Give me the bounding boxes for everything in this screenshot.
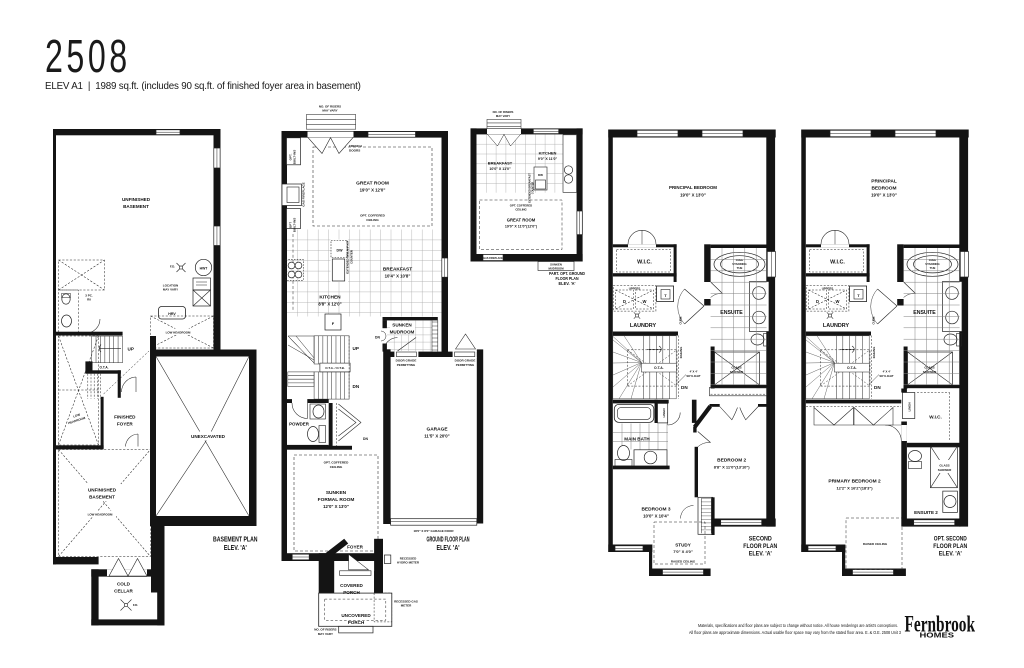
svg-text:MUDROOM: MUDROOM [390,330,415,335]
svg-text:MAY VARY: MAY VARY [322,109,337,113]
svg-text:SKYLIGHT: SKYLIGHT [686,374,700,378]
svg-text:HYDRO METER: HYDRO METER [397,561,420,565]
svg-text:UPPERS: UPPERS [629,287,641,291]
svg-text:ENSUITE: ENSUITE [913,310,936,316]
svg-text:BUILT-INS: BUILT-INS [293,218,297,232]
svg-text:R/I: R/I [87,298,91,302]
svg-text:D: D [623,299,626,304]
svg-text:UNFINISHED: UNFINISHED [122,197,151,202]
svg-text:LINEN: LINEN [662,409,666,418]
svg-text:O.T.A. / O.T.B.: O.T.A. / O.T.B. [325,366,345,370]
svg-text:UP: UP [353,346,359,351]
svg-text:19'0" X 13'0": 19'0" X 13'0" [680,193,706,198]
svg-text:CEILING: CEILING [515,208,526,212]
svg-text:MUDROOM: MUDROOM [548,266,564,270]
svg-text:KITCHEN: KITCHEN [539,151,557,156]
svg-text:LAUNDRY: LAUNDRY [823,323,850,329]
svg-text:TUB: TUB [930,266,936,270]
svg-text:HOMES: HOMES [920,631,955,640]
svg-text:BREAKFAST: BREAKFAST [383,267,412,273]
svg-text:CURB: CURB [872,316,876,324]
svg-text:FLOOR PLAN: FLOOR PLAN [933,543,967,550]
svg-text:UNEXCAVATED: UNEXCAVATED [191,434,226,439]
svg-text:T: T [857,293,860,298]
svg-text:BASEMENT: BASEMENT [123,204,149,209]
svg-text:FORMAL ROOM: FORMAL ROOM [318,497,355,503]
svg-text:DW: DW [337,249,344,253]
svg-text:ENSUITE 2: ENSUITE 2 [914,510,938,515]
svg-text:PERMITTING: PERMITTING [456,363,475,367]
svg-text:UPPERS: UPPERS [822,287,834,291]
svg-text:METER: METER [401,604,412,608]
svg-text:DW: DW [538,173,543,177]
svg-text:OPT. SECOND: OPT. SECOND [934,536,967,543]
svg-text:MAY VARY: MAY VARY [496,114,510,118]
svg-text:W: W [643,299,647,304]
svg-text:COLD: COLD [117,581,131,586]
svg-text:GAS FIREPLACE: GAS FIREPLACE [302,182,306,206]
svg-text:PRIMARY BEDROOM 2: PRIMARY BEDROOM 2 [828,479,881,485]
svg-text:9'0" X 11'0": 9'0" X 11'0" [538,157,558,161]
svg-text:18'0" X 8'0" GARAGE DOOR: 18'0" X 8'0" GARAGE DOOR [413,529,454,533]
svg-text:TUB: TUB [737,266,743,270]
svg-text:ELEV. 'A': ELEV. 'A' [749,550,772,557]
svg-text:ELEV. 'A': ELEV. 'A' [437,543,460,552]
svg-text:O.T.A.: O.T.A. [847,366,857,370]
svg-text:COUNTER: COUNTER [532,182,535,195]
svg-text:UNFINISHED: UNFINISHED [88,488,117,493]
svg-text:CELLAR: CELLAR [114,588,133,593]
svg-text:BASEMENT: BASEMENT [89,495,115,500]
svg-text:OPT. COFFERED: OPT. COFFERED [360,214,386,218]
svg-text:MAY VARY: MAY VARY [318,632,333,636]
svg-text:PRINCIPAL: PRINCIPAL [871,179,897,185]
svg-text:F.D.: F.D. [133,603,139,607]
svg-text:DN: DN [375,336,380,340]
svg-text:10'4" X 10'8": 10'4" X 10'8" [385,274,411,279]
svg-text:GAS FIREPLACE: GAS FIREPLACE [483,257,503,260]
svg-text:ENSUITE: ENSUITE [720,310,743,316]
svg-text:8'8" X 11'0"(13'10"): 8'8" X 11'0"(13'10") [714,465,751,470]
svg-text:19'0" X 11'0"(12'0"): 19'0" X 11'0"(12'0") [505,225,538,229]
svg-text:RAILING: RAILING [872,347,876,359]
svg-text:8'8" X 12'0": 8'8" X 12'0" [318,302,341,307]
svg-text:BREAKFAST: BREAKFAST [488,161,513,166]
svg-text:PRINCIPAL BEDROOM: PRINCIPAL BEDROOM [669,185,717,191]
svg-text:GREAT ROOM: GREAT ROOM [356,181,389,187]
svg-text:BEDROOM: BEDROOM [871,186,896,192]
svg-text:DN: DN [353,384,360,389]
svg-text:ELEV. 'A': ELEV. 'A' [224,543,247,552]
svg-text:O.T.A.: O.T.A. [99,365,108,369]
svg-text:O.T.A.: O.T.A. [654,366,664,370]
svg-text:10'0" X 11'0": 10'0" X 11'0" [489,167,511,171]
svg-text:CEILING: CEILING [366,218,379,222]
svg-text:UP: UP [128,346,134,351]
svg-text:W.I.C.: W.I.C. [830,260,845,266]
svg-text:BUILT-INS: BUILT-INS [293,150,297,164]
svg-text:LOW HEADROOM: LOW HEADROOM [88,513,113,517]
svg-text:FOYER: FOYER [347,544,364,549]
svg-text:All floor plans are approximat: All floor plans are approximate dimensio… [689,630,902,635]
svg-text:RAISED CEILING: RAISED CEILING [863,542,888,546]
svg-text:RAILING: RAILING [679,347,683,359]
svg-text:LOW HEADROOM: LOW HEADROOM [166,330,191,334]
svg-text:SECOND: SECOND [749,536,772,543]
svg-text:RAISED CEILING: RAISED CEILING [671,559,696,563]
svg-text:SUNKEN: SUNKEN [326,490,347,496]
svg-text:10'0" X 10'4": 10'0" X 10'4" [643,514,669,519]
svg-text:Materials, specifications and: Materials, specifications and floor plan… [698,623,898,628]
svg-text:T: T [664,293,667,298]
svg-text:ELEV. 'A': ELEV. 'A' [559,281,576,287]
svg-text:W.I.C.: W.I.C. [637,260,652,266]
svg-text:FLOOR PLAN: FLOOR PLAN [743,543,777,550]
svg-text:7'0" X 4'0": 7'0" X 4'0" [673,549,693,554]
svg-text:BEDROOM 2: BEDROOM 2 [717,458,746,464]
svg-text:W: W [836,299,840,304]
svg-text:COUNTER: COUNTER [349,250,353,264]
svg-text:D: D [816,299,819,304]
svg-text:CEILING: CEILING [330,465,343,469]
svg-text:OPT. COFFERED: OPT. COFFERED [324,461,350,465]
svg-text:HWT: HWT [200,266,209,270]
svg-text:F.D.: F.D. [170,265,176,269]
svg-text:DN: DN [363,437,368,441]
svg-text:GARAGE: GARAGE [426,427,448,433]
svg-text:KITCHEN: KITCHEN [319,295,341,301]
svg-text:FINISHED: FINISHED [114,415,136,420]
svg-text:19'0" X 13'0": 19'0" X 13'0" [871,193,897,198]
svg-text:MAIN BATH: MAIN BATH [624,437,650,442]
svg-text:BEDROOM 3: BEDROOM 3 [641,507,670,513]
svg-text:W.I.C.: W.I.C. [929,414,942,419]
svg-text:LINEN: LINEN [908,403,912,412]
svg-text:POWDER: POWDER [289,421,310,426]
svg-text:11'5" X 20'0": 11'5" X 20'0" [424,434,449,439]
svg-text:DN: DN [681,385,688,390]
svg-text:19'0" X 12'0": 19'0" X 12'0" [360,188,386,193]
svg-text:COVERED: COVERED [340,583,363,588]
svg-text:SUNKEN: SUNKEN [392,323,412,328]
svg-text:LAUNDRY: LAUNDRY [630,323,657,329]
svg-text:STUDY: STUDY [675,543,691,548]
svg-text:CURB: CURB [679,316,683,324]
svg-text:GREAT ROOM: GREAT ROOM [507,218,536,223]
svg-text:SHOWER: SHOWER [938,468,952,472]
svg-text:PORCH: PORCH [348,620,365,625]
svg-text:12'0" X 13'0": 12'0" X 13'0" [323,504,349,509]
svg-text:DOORS: DOORS [349,148,360,152]
svg-text:SKYLIGHT: SKYLIGHT [879,374,893,378]
svg-text:MAY VARY: MAY VARY [163,288,178,292]
svg-text:FOYER: FOYER [117,422,134,427]
svg-text:HRV: HRV [168,312,176,316]
svg-text:12'2" X 16'2"(18'3"): 12'2" X 16'2"(18'3") [836,486,873,491]
svg-text:ELEV. 'A': ELEV. 'A' [939,550,962,557]
svg-text:PERMITTING: PERMITTING [397,363,416,367]
svg-text:DN: DN [874,385,881,390]
svg-text:UNCOVERED: UNCOVERED [341,613,371,618]
